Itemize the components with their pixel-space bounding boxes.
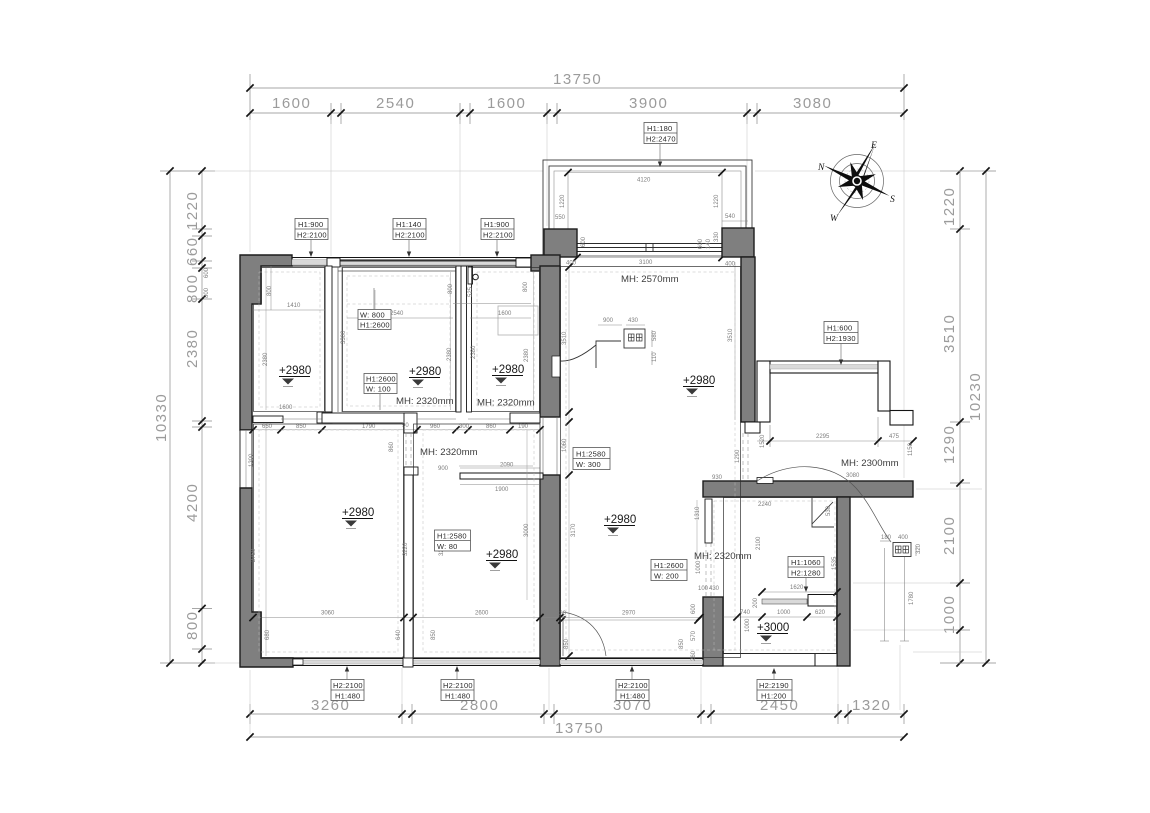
svg-text:W: W — [830, 214, 839, 224]
svg-text:W: 300: W: 300 — [576, 460, 601, 469]
svg-text:1000: 1000 — [941, 595, 958, 634]
svg-text:H2:2470: H2:2470 — [646, 135, 676, 144]
svg-text:3170: 3170 — [571, 523, 577, 537]
svg-text:800: 800 — [267, 285, 273, 296]
svg-text:H2:2100: H2:2100 — [333, 681, 363, 690]
svg-text:540: 540 — [725, 214, 736, 220]
svg-text:800: 800 — [184, 273, 201, 303]
svg-text:10330: 10330 — [153, 393, 170, 442]
svg-text:600: 600 — [698, 238, 704, 249]
svg-text:H2:2100: H2:2100 — [618, 681, 648, 690]
svg-text:530: 530 — [826, 505, 832, 516]
svg-text:1060: 1060 — [562, 438, 568, 452]
svg-text:1150: 1150 — [908, 442, 914, 456]
svg-text:N: N — [817, 163, 825, 173]
svg-text:620: 620 — [815, 610, 826, 616]
svg-text:1200: 1200 — [249, 453, 255, 467]
svg-text:2970: 2970 — [622, 611, 636, 617]
svg-text:H2:1930: H2:1930 — [826, 334, 856, 343]
svg-text:4200: 4200 — [184, 483, 201, 522]
svg-text:+2980: +2980 — [492, 364, 524, 376]
svg-text:1220: 1220 — [714, 194, 720, 208]
svg-text:550: 550 — [555, 215, 566, 221]
svg-text:190: 190 — [518, 424, 529, 430]
svg-text:850: 850 — [679, 638, 685, 649]
svg-text:140: 140 — [706, 238, 712, 249]
svg-text:740: 740 — [740, 610, 751, 616]
svg-text:1320: 1320 — [852, 697, 891, 714]
svg-text:2240: 2240 — [758, 502, 772, 508]
svg-text:400: 400 — [898, 535, 909, 541]
svg-text:H1:480: H1:480 — [620, 692, 645, 701]
svg-text:300: 300 — [459, 424, 470, 430]
svg-text:430: 430 — [709, 586, 720, 592]
svg-text:1410: 1410 — [287, 303, 301, 309]
svg-text:3300: 3300 — [341, 330, 347, 344]
svg-text:+2980: +2980 — [683, 375, 715, 387]
svg-text:2380: 2380 — [524, 348, 530, 362]
svg-text:260: 260 — [691, 650, 697, 661]
svg-text:2600: 2600 — [475, 611, 489, 617]
svg-text:3060: 3060 — [321, 611, 335, 617]
svg-text:900: 900 — [603, 318, 614, 324]
svg-text:H1:900: H1:900 — [484, 220, 509, 229]
svg-text:330: 330 — [714, 231, 720, 242]
svg-text:MH: 2320mm: MH: 2320mm — [396, 396, 454, 407]
svg-text:H1:2600: H1:2600 — [654, 561, 684, 570]
svg-text:3510: 3510 — [562, 331, 568, 345]
svg-text:200: 200 — [753, 597, 759, 608]
svg-text:960: 960 — [430, 424, 441, 430]
svg-text:MH: 2300mm: MH: 2300mm — [841, 458, 899, 469]
svg-text:+2980: +2980 — [604, 514, 636, 526]
svg-text:1780: 1780 — [909, 591, 915, 605]
svg-text:13750: 13750 — [555, 720, 604, 737]
svg-text:H2:2100: H2:2100 — [297, 231, 327, 240]
svg-text:2380: 2380 — [447, 347, 453, 361]
svg-text:660: 660 — [184, 236, 201, 266]
svg-text:W: 100: W: 100 — [366, 385, 391, 394]
svg-text:850: 850 — [431, 629, 437, 640]
svg-text:1900: 1900 — [495, 487, 509, 493]
svg-text:MH: 2320mm: MH: 2320mm — [477, 398, 535, 409]
svg-text:1220: 1220 — [941, 187, 958, 226]
svg-text:H1:140: H1:140 — [396, 220, 421, 229]
svg-text:H2:2100: H2:2100 — [443, 681, 473, 690]
svg-text:900: 900 — [438, 466, 449, 472]
svg-text:800: 800 — [523, 281, 529, 292]
svg-text:H1:480: H1:480 — [335, 692, 360, 701]
svg-text:W: 200: W: 200 — [654, 572, 679, 581]
svg-text:+3000: +3000 — [757, 622, 789, 634]
svg-text:600: 600 — [204, 267, 210, 278]
svg-text:H1:2600: H1:2600 — [360, 321, 390, 330]
svg-text:H2:2100: H2:2100 — [395, 231, 425, 240]
svg-text:600: 600 — [581, 236, 587, 247]
svg-text:H2:2190: H2:2190 — [759, 681, 789, 690]
svg-text:MH: 2570mm: MH: 2570mm — [621, 274, 679, 285]
svg-text:H2:1280: H2:1280 — [791, 569, 821, 578]
svg-text:MH: 2320mm: MH: 2320mm — [420, 447, 478, 458]
svg-text:800: 800 — [204, 287, 210, 298]
svg-text:110: 110 — [652, 352, 658, 362]
svg-text:1000: 1000 — [745, 618, 751, 632]
svg-text:W: 800: W: 800 — [360, 311, 385, 320]
svg-text:2750: 2750 — [251, 548, 257, 562]
svg-text:H1:2580: H1:2580 — [437, 532, 467, 541]
svg-text:860: 860 — [486, 424, 497, 430]
svg-text:3510: 3510 — [941, 314, 958, 353]
svg-text:1600: 1600 — [487, 95, 526, 112]
svg-text:3220: 3220 — [403, 542, 409, 556]
svg-text:120: 120 — [556, 611, 567, 617]
svg-text:1790: 1790 — [362, 424, 376, 430]
svg-text:650: 650 — [262, 424, 273, 430]
svg-text:930: 930 — [712, 475, 723, 481]
svg-text:180: 180 — [881, 535, 892, 541]
svg-text:+2980: +2980 — [409, 366, 441, 378]
svg-text:1290: 1290 — [941, 425, 958, 464]
svg-text:+2980: +2980 — [342, 507, 374, 519]
svg-text:3000: 3000 — [524, 523, 530, 537]
svg-text:525: 525 — [468, 286, 474, 297]
svg-text:3510: 3510 — [728, 328, 734, 342]
svg-text:2380: 2380 — [263, 352, 269, 366]
svg-text:S: S — [890, 195, 895, 205]
svg-text:H1:200: H1:200 — [761, 692, 786, 701]
svg-text:W: 80: W: 80 — [437, 542, 457, 551]
svg-text:2540: 2540 — [390, 311, 404, 317]
svg-text:4120: 4120 — [637, 178, 651, 184]
svg-text:800: 800 — [184, 610, 201, 640]
svg-text:13750: 13750 — [553, 71, 602, 88]
svg-text:1220: 1220 — [184, 191, 201, 230]
svg-text:H1:900: H1:900 — [298, 220, 323, 229]
svg-text:680: 680 — [265, 629, 271, 640]
svg-text:3900: 3900 — [629, 95, 668, 112]
svg-text:3100: 3100 — [639, 260, 653, 266]
svg-text:1600: 1600 — [272, 95, 311, 112]
svg-text:2100: 2100 — [941, 516, 958, 555]
svg-text:E: E — [870, 141, 877, 151]
svg-text:850: 850 — [296, 424, 307, 430]
svg-text:2295: 2295 — [816, 434, 830, 440]
svg-text:1310: 1310 — [695, 506, 701, 520]
svg-text:H2:2100: H2:2100 — [483, 231, 513, 240]
svg-text:2380: 2380 — [184, 329, 201, 368]
svg-text:1620: 1620 — [790, 585, 804, 591]
svg-text:2380: 2380 — [471, 345, 477, 359]
svg-text:H1:2580: H1:2580 — [576, 450, 606, 459]
svg-text:2090: 2090 — [500, 463, 514, 469]
svg-text:430: 430 — [628, 318, 639, 324]
svg-text:860: 860 — [389, 441, 395, 452]
svg-text:H1:180: H1:180 — [647, 124, 672, 133]
svg-text:100: 100 — [698, 586, 709, 592]
svg-text:320: 320 — [916, 543, 922, 554]
svg-text:600: 600 — [691, 603, 697, 614]
svg-text:+2980: +2980 — [279, 365, 311, 377]
svg-text:1220: 1220 — [560, 194, 566, 208]
svg-text:1290: 1290 — [735, 449, 741, 463]
svg-text:+2980: +2980 — [486, 549, 518, 561]
svg-text:3080: 3080 — [793, 95, 832, 112]
svg-text:H1:600: H1:600 — [827, 324, 852, 333]
svg-text:10230: 10230 — [967, 372, 984, 421]
svg-text:1000: 1000 — [696, 560, 702, 574]
svg-text:MH: 2320mm: MH: 2320mm — [694, 551, 752, 562]
svg-text:2540: 2540 — [376, 95, 415, 112]
svg-text:2100: 2100 — [756, 536, 762, 550]
svg-text:H1:1060: H1:1060 — [791, 558, 821, 567]
svg-text:850: 850 — [564, 638, 570, 649]
svg-text:1520: 1520 — [760, 434, 766, 448]
svg-text:570: 570 — [691, 630, 697, 641]
svg-text:1600: 1600 — [498, 311, 512, 317]
svg-text:580: 580 — [652, 330, 658, 341]
svg-text:640: 640 — [396, 629, 402, 640]
svg-text:475: 475 — [889, 434, 900, 440]
svg-text:H1:2600: H1:2600 — [366, 375, 396, 384]
svg-text:3080: 3080 — [846, 473, 860, 479]
svg-text:1600: 1600 — [279, 405, 293, 411]
svg-text:1000: 1000 — [777, 610, 791, 616]
svg-text:H1:480: H1:480 — [445, 692, 470, 701]
svg-text:800: 800 — [448, 283, 454, 294]
